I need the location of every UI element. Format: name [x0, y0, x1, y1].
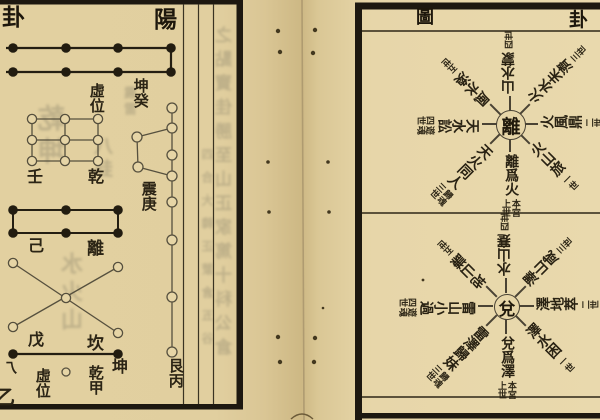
spoke-hexagram-name: 離爲火: [503, 154, 517, 196]
spoke-line: [486, 315, 497, 326]
wheel-center-li: 離: [496, 110, 526, 140]
spoke-generation-note: 四世: [505, 28, 515, 49]
spoke-hexagram-name: 山水蒙: [503, 52, 517, 94]
label-xu-wei-bottom: 虛位: [33, 368, 50, 398]
label-qian: 乾: [88, 170, 104, 186]
spoke-generation-note: 五世: [435, 235, 457, 257]
spoke-generation-note: 遊魂四世: [414, 114, 435, 134]
spoke-generation-note: 五世: [439, 53, 461, 75]
spoke-generation-note: 三世: [569, 43, 591, 65]
spoke-generation-note: 二世: [585, 119, 600, 129]
label-li: 離: [87, 240, 104, 257]
label-qian-jia: 乾甲: [86, 365, 103, 395]
spoke-generation-note: 三世: [556, 235, 578, 257]
spoke-hexagram-name: 天水訟: [438, 117, 480, 131]
right-page-header-tu: 圖: [416, 8, 434, 26]
spoke-generation-note: 遊魂四世: [396, 296, 417, 316]
label-zhen-geng: 震庚: [139, 181, 156, 211]
left-page-header: 陽: [154, 8, 177, 31]
spoke-generation-note: 四世: [501, 210, 511, 231]
left-page-bottom-corner-char: 乙: [0, 388, 15, 408]
label-kan: 坎: [87, 335, 104, 352]
spoke-hexagram-name: 水山蹇: [499, 234, 513, 276]
label-gen-bing: 艮丙: [166, 358, 183, 388]
spoke-hexagram-name: 火風鼎: [540, 117, 582, 131]
label-wu: 戊: [28, 333, 44, 349]
label-xu-wei-top: 虛位: [87, 83, 104, 113]
label-ren: 壬: [27, 170, 43, 186]
right-page-header-gua: 卦: [569, 11, 588, 30]
book-scan-spread: { "colors": { "paper_left": "#e2d0a0", "…: [0, 0, 600, 420]
spoke-generation-note: 本宮上世: [496, 381, 516, 402]
wheel-center-dui: 兌: [494, 294, 520, 320]
spoke-hexagram-name: 澤地萃: [536, 299, 578, 313]
label-ji: 己: [28, 239, 44, 255]
label-hook-stroke: 乁: [3, 363, 17, 377]
label-kun-gui: 坤癸: [131, 78, 148, 108]
spoke-hexagram-name: 兌爲澤: [499, 336, 513, 378]
spoke-hexagram-name: 雷山小過: [420, 299, 476, 313]
left-page-corner-title: 卦: [2, 6, 25, 29]
spoke-generation-note: 二世: [581, 301, 600, 311]
label-kun: 坤: [112, 360, 128, 376]
